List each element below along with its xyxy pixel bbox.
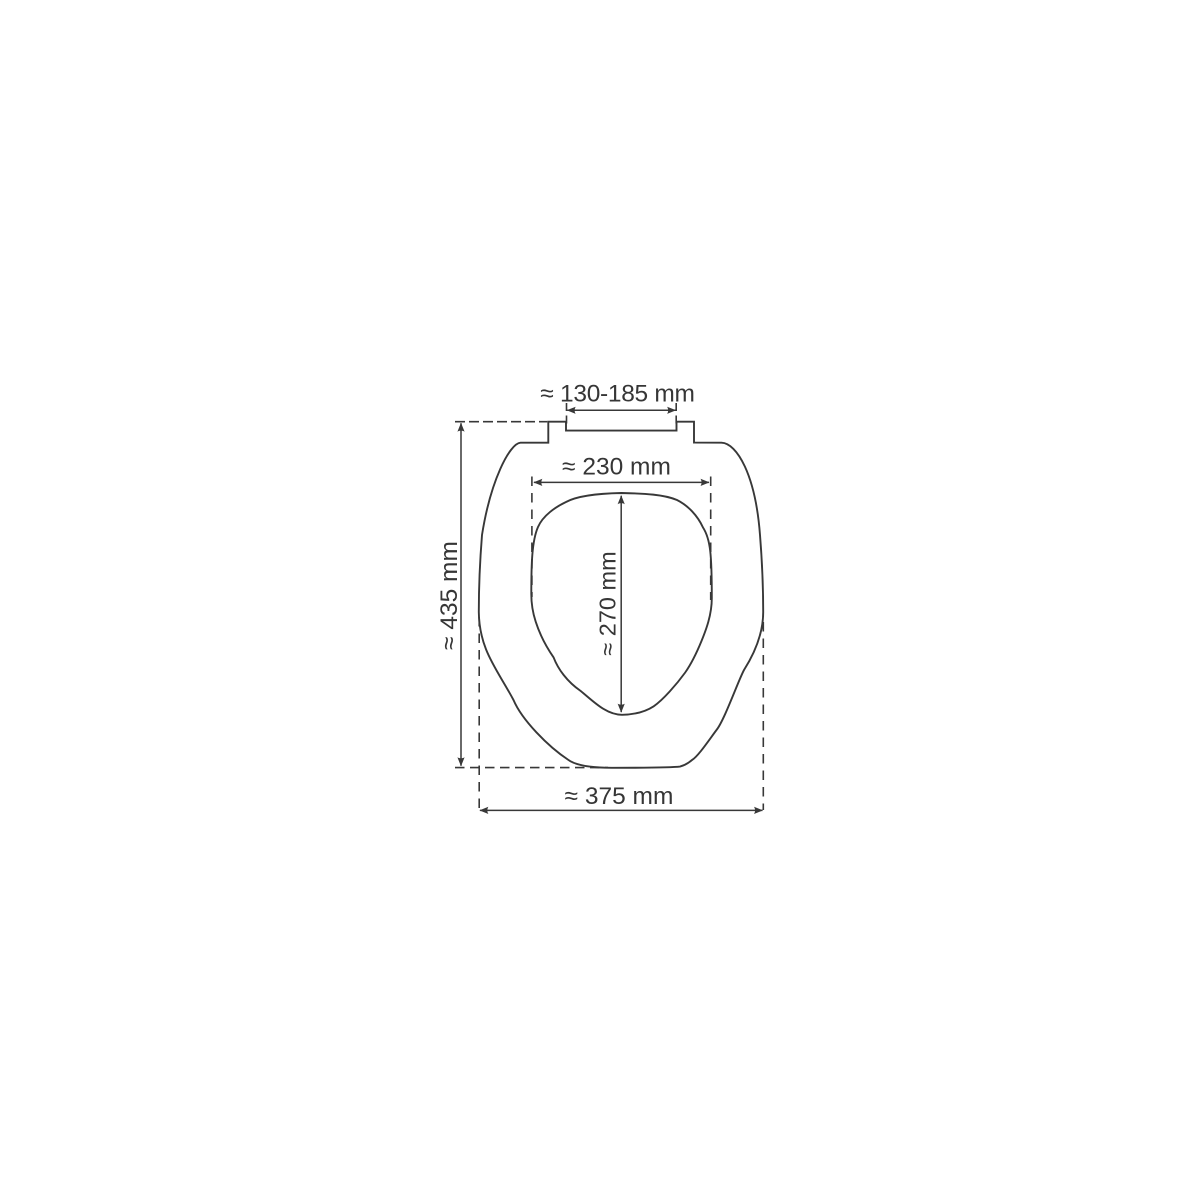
svg-text:≈ 270 mm: ≈ 270 mm <box>595 551 621 655</box>
svg-text:≈ 375 mm: ≈ 375 mm <box>565 783 674 810</box>
svg-text:≈ 435 mm: ≈ 435 mm <box>436 541 463 650</box>
svg-text:≈ 130-185 mm: ≈ 130-185 mm <box>540 381 694 408</box>
svg-text:≈ 230 mm: ≈ 230 mm <box>562 454 671 481</box>
